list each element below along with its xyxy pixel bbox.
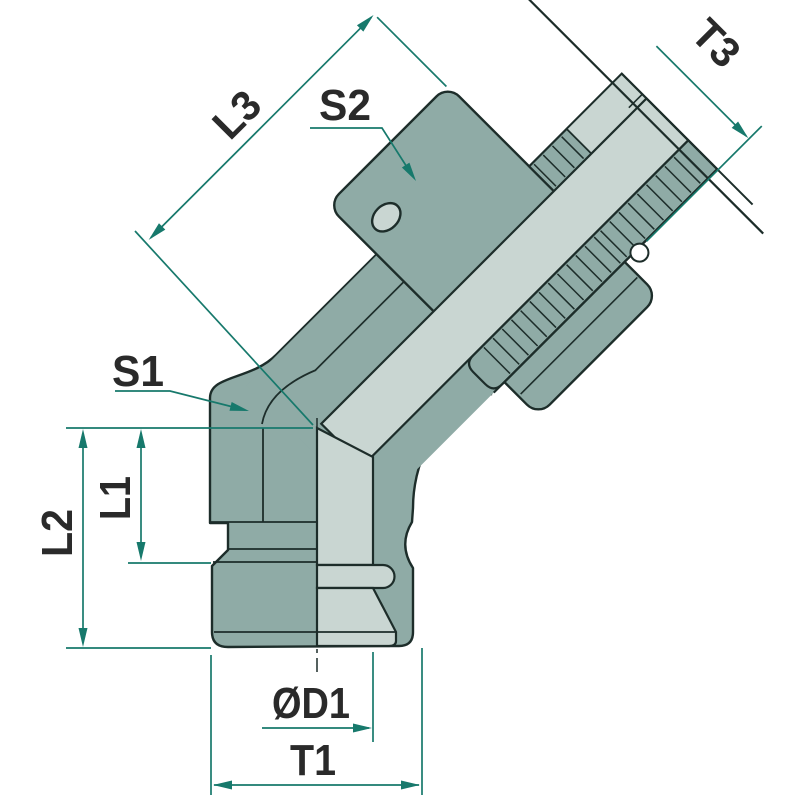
d1-arrowhead: [353, 724, 372, 733]
dim-label-d1: ØD1: [272, 679, 350, 728]
l1-arrowhead-top: [137, 429, 146, 448]
fitting-elbow-drawing: T3 L3: [0, 0, 800, 800]
l1-arrowhead-bottom: [137, 542, 146, 561]
dim-label-s2: S2: [319, 81, 371, 130]
dim-label-t3: T3: [683, 9, 750, 76]
dim-label-l3: L3: [203, 81, 270, 148]
dim-label-s1: S1: [112, 347, 164, 396]
l2-arrowhead-top: [79, 429, 88, 448]
dim-label-t1: T1: [290, 736, 336, 785]
dim-label-l1: L1: [91, 476, 140, 520]
l2-arrowhead-bottom: [79, 628, 88, 647]
t1-arrowhead-right: [401, 781, 420, 790]
l3-extension-line-nut: [377, 17, 446, 86]
oring-slot: [317, 565, 395, 588]
technical-drawing-page: T3 L3: [0, 0, 800, 800]
dimension-l2: [66, 429, 211, 648]
fitting-angled-branch: T3 L3: [89, 0, 800, 568]
t1-arrowhead-left: [213, 781, 232, 790]
dim-label-l2: L2: [33, 509, 82, 557]
dimension-l1: [128, 429, 211, 563]
